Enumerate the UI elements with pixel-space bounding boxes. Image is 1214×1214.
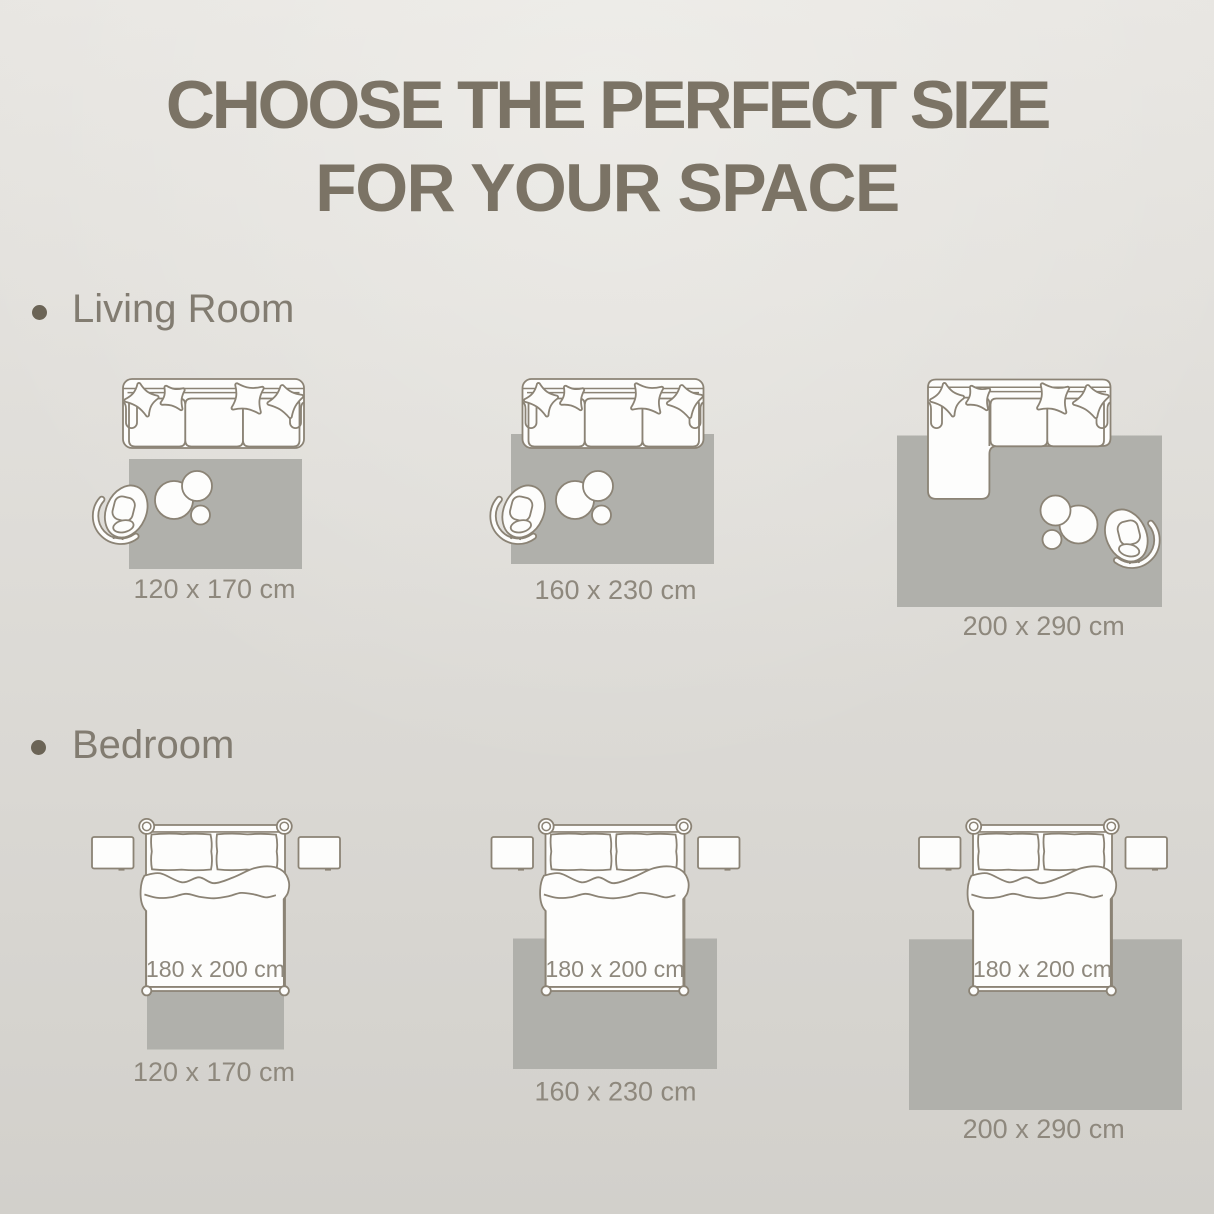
svg-text:120 x 170 cm: 120 x 170 cm	[133, 1057, 295, 1087]
svg-text:Living Room: Living Room	[72, 287, 294, 331]
svg-text:FOR YOUR SPACE: FOR YOUR SPACE	[315, 150, 898, 226]
svg-text:200 x 290 cm: 200 x 290 cm	[963, 611, 1125, 641]
svg-text:180 x 200 cm: 180 x 200 cm	[973, 956, 1112, 982]
svg-text:CHOOSE THE PERFECT SIZE: CHOOSE THE PERFECT SIZE	[166, 67, 1049, 143]
svg-text:Bedroom: Bedroom	[72, 723, 234, 767]
svg-text:120 x 170 cm: 120 x 170 cm	[133, 574, 295, 604]
svg-text:180 x 200 cm: 180 x 200 cm	[545, 956, 684, 982]
svg-text:160 x 230 cm: 160 x 230 cm	[534, 575, 696, 605]
svg-text:200 x 290 cm: 200 x 290 cm	[963, 1114, 1125, 1144]
svg-text:160 x 230 cm: 160 x 230 cm	[534, 1077, 696, 1107]
svg-text:180 x 200 cm: 180 x 200 cm	[146, 956, 285, 982]
